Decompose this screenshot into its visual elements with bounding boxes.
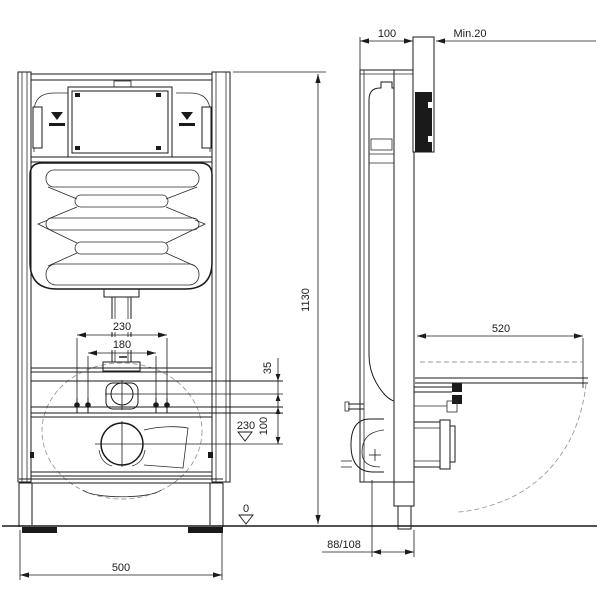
bracket-rails: [31, 368, 283, 417]
mid-rail: [31, 157, 212, 162]
wall-rail: [413, 37, 434, 152]
dim-chain-right: 35 100 230: [237, 358, 281, 444]
dim-frame-height: 1130: [233, 72, 326, 524]
left-fixing-slot: [33, 107, 42, 148]
water-level-icon: [179, 112, 195, 126]
front-view: 230 180 35 100 230: [18, 72, 326, 580]
left-bracket: [33, 93, 68, 152]
outlet-spigot: [414, 420, 455, 469]
water-supply-stub: [345, 402, 364, 411]
right-clip: [208, 452, 213, 458]
base-box: [19, 479, 223, 533]
cistern-ribs: [38, 170, 205, 285]
left-foot: [22, 527, 57, 533]
flush-connection: [105, 380, 283, 410]
level-floor-label: 0: [243, 503, 249, 515]
cistern: [30, 163, 212, 289]
frame-leg: [394, 482, 414, 529]
level-floor-triangle-icon: [239, 515, 253, 524]
level-outlet-label: 230: [237, 420, 255, 432]
dim-flushpipe-outer-label: 230: [113, 321, 131, 333]
bowl-side-outline: [415, 362, 588, 512]
drawing-svg: 230 180 35 100 230: [0, 0, 600, 600]
dim-bracket-offset-label: 35: [262, 362, 274, 374]
left-post: [18, 72, 31, 482]
dim-frame-width-label: 500: [112, 562, 130, 574]
technical-drawing-canvas: 230 180 35 100 230: [0, 0, 600, 600]
dim-frame-height-label: 1130: [300, 288, 312, 312]
dim-outlet-pipe-label: 88/108: [327, 539, 361, 551]
top-rail: [31, 74, 212, 87]
right-fixing-slot: [202, 107, 211, 148]
dim-outlet-pipe: 88/108: [322, 480, 414, 557]
cistern-profile: [369, 82, 394, 401]
frame-profile: [360, 70, 414, 482]
level-floor: 0: [239, 503, 253, 524]
level-outlet-triangle-icon: [238, 432, 252, 441]
dim-wall-clearance-label: Min.20: [453, 28, 486, 40]
fixing-rod: [414, 383, 462, 412]
dim-frame-depth-label: 100: [378, 28, 396, 40]
right-bracket: [176, 93, 211, 152]
dim-bolt-to-outlet-label: 100: [258, 417, 270, 435]
dim-frame-width: 500: [20, 530, 222, 580]
water-level-icon: [49, 112, 65, 126]
left-clip: [30, 452, 34, 458]
drain-elbow: [341, 419, 384, 472]
panel-top-tab: [114, 81, 131, 87]
dim-bowl-projection-label: 520: [492, 323, 510, 335]
right-foot: [188, 527, 223, 533]
dim-wall-clearance: Min.20: [436, 28, 596, 44]
access-panel: [68, 87, 172, 157]
dim-flushpipe-inner-label: 180: [113, 339, 131, 351]
right-post: [212, 72, 230, 482]
side-view: 100 Min.20 520: [322, 28, 596, 557]
dim-frame-depth: 100: [360, 28, 413, 72]
